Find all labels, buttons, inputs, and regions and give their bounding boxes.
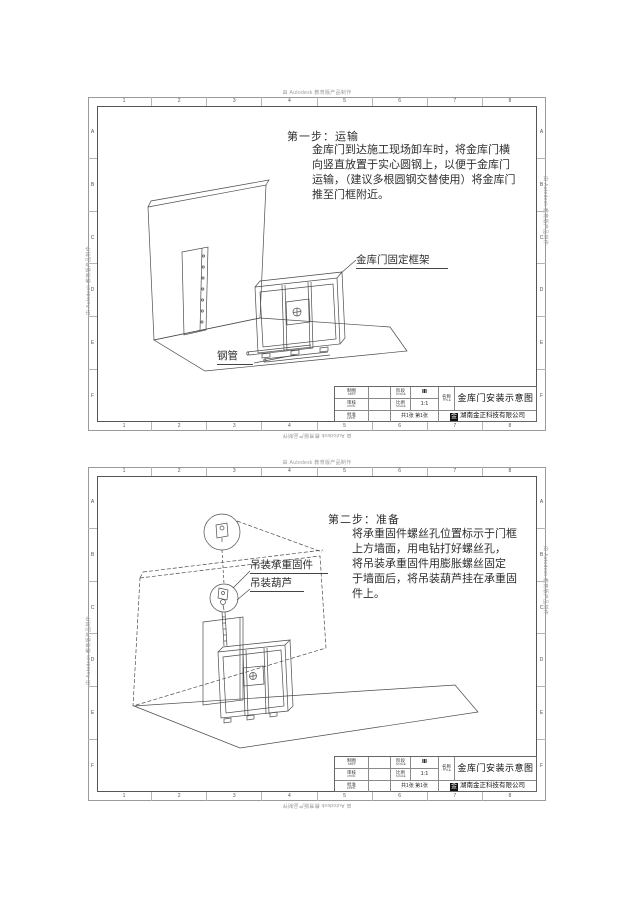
scale-value: 1:1 [421, 772, 429, 778]
part-label-door-frame: 金库门固定框架 [356, 252, 448, 269]
stage-value: Ⅲ [422, 390, 427, 396]
zone-row-label: C [88, 212, 97, 265]
stage-value: Ⅲ [422, 760, 427, 766]
zone-column-label: 3 [207, 467, 262, 476]
zone-column-label: 3 [207, 97, 262, 106]
step-line: 上方墙面，用电钻打好螺丝孔， [352, 542, 517, 557]
zone-column-label: 4 [262, 792, 317, 801]
step-title: 第一步：运输 [287, 128, 359, 144]
document-page: 由 Autodesk 教育版产品制作 由 Autodesk 教育版产品制作 由 … [0, 0, 636, 900]
zone-row-label: B [88, 529, 97, 582]
step-line: 于墙面后，将吊装葫芦挂在承重固 [352, 572, 517, 587]
title-block-cell-scale: 比例 SCALE [391, 769, 411, 781]
label-stage-en: STAGE [396, 393, 406, 396]
floor [154, 318, 407, 371]
title-block-cell-check: 审核 CHKD. [335, 769, 369, 781]
zone-row-label: F [88, 740, 97, 792]
zone-row-label: C [537, 582, 546, 635]
scale-value: 1:1 [421, 402, 429, 408]
zone-column-label: 7 [428, 792, 483, 801]
drawing-title: 金库门安装示意图 [457, 394, 533, 403]
zone-column-label: 5 [318, 467, 373, 476]
zone-column-label: 2 [152, 422, 207, 431]
lifting-fixture-and-hoist [210, 584, 238, 612]
label-name-en: TITLE [442, 399, 450, 402]
zone-rows-right: ABCDEF [537, 106, 546, 422]
label-draw-en: DRFT. [347, 393, 355, 396]
title-block-cell-blank [369, 387, 391, 399]
title-block-cell-company: 金 湖南金正科技有限公司 [439, 781, 536, 792]
wall-door-opening [182, 247, 208, 335]
title-block-cell-scale: 比例 SCALE [391, 399, 411, 411]
zone-row-label: A [537, 476, 546, 529]
zone-row-label: C [537, 212, 546, 265]
title-block-cell-blank [369, 399, 391, 411]
step-line: 运输，（建议多根圆钢交替使用）将金库门 [312, 173, 516, 188]
zone-column-label: 4 [262, 422, 317, 431]
floor [134, 685, 478, 748]
company-logo: 金 [450, 413, 458, 421]
zone-column-label: 2 [152, 467, 207, 476]
drawing-sheet-1: 由 Autodesk 教育版产品制作 由 Autodesk 教育版产品制作 由 … [88, 97, 546, 431]
label-approve-en: APPD. [347, 787, 356, 790]
zone-column-label: 1 [97, 467, 152, 476]
part-label-steel-pipe: 钢管 [217, 348, 253, 365]
zone-column-label: 8 [483, 467, 537, 476]
wall [148, 180, 269, 340]
title-block-cell-blank [369, 769, 391, 781]
zone-row-label: A [88, 476, 97, 529]
zone-column-label: 1 [97, 97, 152, 106]
step-line: 向竖直放置于实心圆钢上，以便于金库门 [312, 158, 516, 173]
sheet-count: 共1张 第1张 [401, 784, 428, 789]
step-line: 将吊装承重固件用膨胀螺丝固定 [352, 557, 517, 572]
zone-rows-left: ABCDEF [88, 106, 97, 422]
zone-row-label: B [88, 159, 97, 212]
zone-column-label: 8 [483, 792, 537, 801]
title-block-cell-blank [369, 411, 391, 422]
sheet-count: 共1张 第1张 [401, 414, 428, 419]
autodesk-watermark-top: 由 Autodesk 教育版产品制作 [282, 459, 351, 466]
zone-column-label: 3 [207, 422, 262, 431]
zone-column-label: 2 [152, 792, 207, 801]
zone-columns-top: 12345678 [97, 467, 537, 476]
step-line: 金库门到达施工现场卸车时，将金库门横 [312, 143, 516, 158]
zone-columns-top: 12345678 [97, 97, 537, 106]
label-check-en: CHKD. [347, 775, 356, 778]
step-instructions: 金库门到达施工现场卸车时，将金库门横向竖直放置于实心圆钢上，以便于金库门运输，（… [312, 143, 516, 203]
zone-column-label: 5 [318, 422, 373, 431]
zone-row-label: A [537, 106, 546, 159]
zone-row-label: D [537, 634, 546, 687]
vault-door-frame [218, 640, 293, 723]
title-block-cell-approve: 批准 APPD. [335, 411, 369, 422]
title-block-cell-title: 金库门安装示意图 [455, 387, 536, 411]
title-block-cell-approve: 批准 APPD. [335, 781, 369, 792]
zone-rows-left: ABCDEF [88, 476, 97, 792]
zone-column-label: 6 [373, 792, 428, 801]
company-name: 湖南金正科技有限公司 [460, 413, 525, 420]
title-block-cell-stage: 阶段 STAGE [391, 387, 411, 399]
vault-door-frame [255, 272, 345, 358]
zone-row-label: D [88, 634, 97, 687]
title-block-cell-name-label: 名称 TITLE [439, 387, 455, 411]
label-draw-en: DRFT. [347, 763, 355, 766]
title-block-cell-sheet-count: 共1张 第1张 [391, 411, 439, 422]
zone-column-label: 3 [207, 792, 262, 801]
zone-column-label: 5 [318, 97, 373, 106]
title-block-cell-title: 金库门安装示意图 [455, 757, 536, 781]
hoist-chain [222, 612, 227, 646]
zone-row-label: D [88, 264, 97, 317]
drawing-title: 金库门安装示意图 [457, 764, 533, 773]
step-title: 第二步：准备 [328, 511, 400, 527]
title-block-cell-check: 审核 CHKD. [335, 399, 369, 411]
zone-row-label: E [537, 687, 546, 740]
zone-column-label: 4 [262, 467, 317, 476]
zone-row-label: E [537, 317, 546, 370]
part-label-hoist: 吊装葫芦 [250, 575, 304, 592]
zone-row-label: E [88, 317, 97, 370]
part-label-lifting-fixture: 吊装承重固件 [250, 557, 328, 574]
title-block-cell-stage-value: Ⅲ [411, 757, 439, 769]
drawing-sheet-2: 由 Autodesk 教育版产品制作 由 Autodesk 教育版产品制作 由 … [88, 467, 546, 801]
title-block-cell-blank [369, 757, 391, 769]
detail-balloon [204, 514, 240, 584]
zone-columns-bottom: 12345678 [97, 422, 537, 431]
title-block-cell-stage: 阶段 STAGE [391, 757, 411, 769]
label-stage-en: STAGE [396, 763, 406, 766]
autodesk-watermark-top: 由 Autodesk 教育版产品制作 [282, 89, 351, 96]
zone-column-label: 6 [373, 422, 428, 431]
zone-rows-right: ABCDEF [537, 476, 546, 792]
autodesk-watermark-bottom: 由 Autodesk 教育版产品制作 [282, 432, 351, 439]
title-block-cell-sheet-count: 共1张 第1张 [391, 781, 439, 792]
title-block: 制图 DRFT. 阶段 STAGE Ⅲ 名称 TITLE 金库门安装示意图 审核… [334, 386, 537, 422]
zone-row-label: F [537, 740, 546, 792]
title-block: 制图 DRFT. 阶段 STAGE Ⅲ 名称 TITLE 金库门安装示意图 审核… [334, 756, 537, 792]
zone-columns-bottom: 12345678 [97, 792, 537, 801]
zone-column-label: 1 [97, 422, 152, 431]
label-approve-en: APPD. [347, 417, 356, 420]
leader-lines [233, 571, 250, 600]
zone-column-label: 5 [318, 792, 373, 801]
label-check-en: CHKD. [347, 405, 356, 408]
title-block-cell-draw: 制图 DRFT. [335, 387, 369, 399]
title-block-cell-blank [369, 781, 391, 792]
zone-row-label: C [88, 582, 97, 635]
zone-column-label: 4 [262, 97, 317, 106]
step-line: 将承重固件螺丝孔位置标示于门框 [352, 527, 517, 542]
wall-hidden [133, 521, 326, 706]
zone-row-label: F [537, 370, 546, 422]
company-name: 湖南金正科技有限公司 [460, 783, 525, 790]
zone-column-label: 7 [428, 97, 483, 106]
zone-column-label: 2 [152, 97, 207, 106]
step-line: 件上。 [352, 587, 517, 602]
title-block-cell-scale-value: 1:1 [411, 769, 439, 781]
zone-column-label: 7 [428, 422, 483, 431]
step-line: 推至门框附近。 [312, 188, 516, 203]
zone-column-label: 8 [483, 422, 537, 431]
zone-column-label: 6 [373, 97, 428, 106]
label-scale-en: SCALE [396, 775, 406, 778]
zone-column-label: 6 [373, 467, 428, 476]
title-block-cell-stage-value: Ⅲ [411, 387, 439, 399]
label-name-en: TITLE [442, 769, 450, 772]
step-instructions: 将承重固件螺丝孔位置标示于门框上方墙面，用电钻打好螺丝孔，将吊装承重固件用膨胀螺… [352, 527, 517, 602]
title-block-cell-name-label: 名称 TITLE [439, 757, 455, 781]
zone-row-label: B [537, 529, 546, 582]
zone-row-label: B [537, 159, 546, 212]
title-block-cell-company: 金 湖南金正科技有限公司 [439, 411, 536, 422]
zone-column-label: 1 [97, 792, 152, 801]
zone-row-label: D [537, 264, 546, 317]
zone-row-label: A [88, 106, 97, 159]
label-scale-en: SCALE [396, 405, 406, 408]
zone-column-label: 8 [483, 97, 537, 106]
isometric-drawing-preparation [97, 476, 537, 792]
autodesk-watermark-bottom: 由 Autodesk 教育版产品制作 [282, 802, 351, 809]
title-block-cell-scale-value: 1:1 [411, 399, 439, 411]
zone-column-label: 7 [428, 467, 483, 476]
zone-row-label: E [88, 687, 97, 740]
zone-row-label: F [88, 370, 97, 422]
company-logo: 金 [450, 783, 458, 791]
title-block-cell-draw: 制图 DRFT. [335, 757, 369, 769]
